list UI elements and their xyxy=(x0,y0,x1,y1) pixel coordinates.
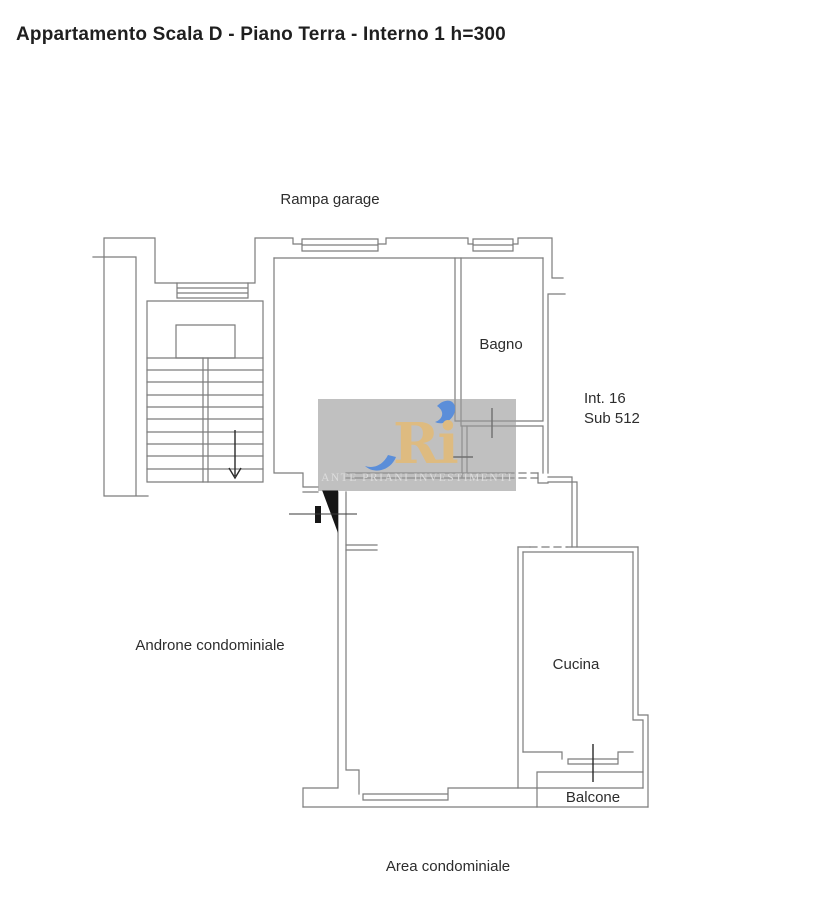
wall-stub xyxy=(346,545,377,550)
stair-down-arrow xyxy=(229,430,241,478)
logo-monogram: Ri xyxy=(393,411,458,477)
label-sub: Sub 512 xyxy=(584,410,640,427)
wall-stair-right xyxy=(274,258,318,492)
window-top-main xyxy=(302,239,378,251)
door-leaf xyxy=(322,490,338,533)
stair-treads xyxy=(147,358,263,469)
watermark: Ri Ante Priani Investimenti xyxy=(318,399,516,491)
wall-cucina-top xyxy=(518,547,638,552)
page-title: Appartamento Scala D - Piano Terra - Int… xyxy=(16,24,506,46)
label-interno: Int. 16 xyxy=(584,390,626,407)
wall-lines xyxy=(93,238,648,807)
label-cucina: Cucina xyxy=(553,656,600,673)
wall-cucina-left xyxy=(518,547,523,788)
label-area-condominiale: Area condominiale xyxy=(386,858,510,875)
stair-stringer xyxy=(203,358,208,482)
watermark-company-name: Ante Priani Investimenti xyxy=(321,472,513,484)
wall-lower-left xyxy=(303,492,359,807)
wall-top-left xyxy=(93,238,177,496)
window-top-bagno xyxy=(473,239,513,251)
floor-plan-page: Appartamento Scala D - Piano Terra - Int… xyxy=(0,0,839,900)
stair-landing xyxy=(176,325,235,358)
wall-cucina-right xyxy=(633,547,648,807)
entrance-door-icon xyxy=(289,490,357,533)
stair-box xyxy=(147,301,263,482)
label-bagno: Bagno xyxy=(479,336,522,353)
label-androne: Androne condominiale xyxy=(135,637,284,654)
wall-corridor-notch xyxy=(538,473,577,547)
wall-cucina-bottom xyxy=(523,752,633,764)
wall-top-right xyxy=(513,238,565,473)
wall-top-mid-left xyxy=(248,238,302,283)
floor-plan-drawing: Ri Ante Priani Investimenti Rampa garage… xyxy=(0,0,839,900)
window-stairwell xyxy=(177,283,248,298)
wall-top-mid-right xyxy=(378,238,473,244)
label-balcone: Balcone xyxy=(566,789,620,806)
label-rampa-garage: Rampa garage xyxy=(280,191,379,208)
